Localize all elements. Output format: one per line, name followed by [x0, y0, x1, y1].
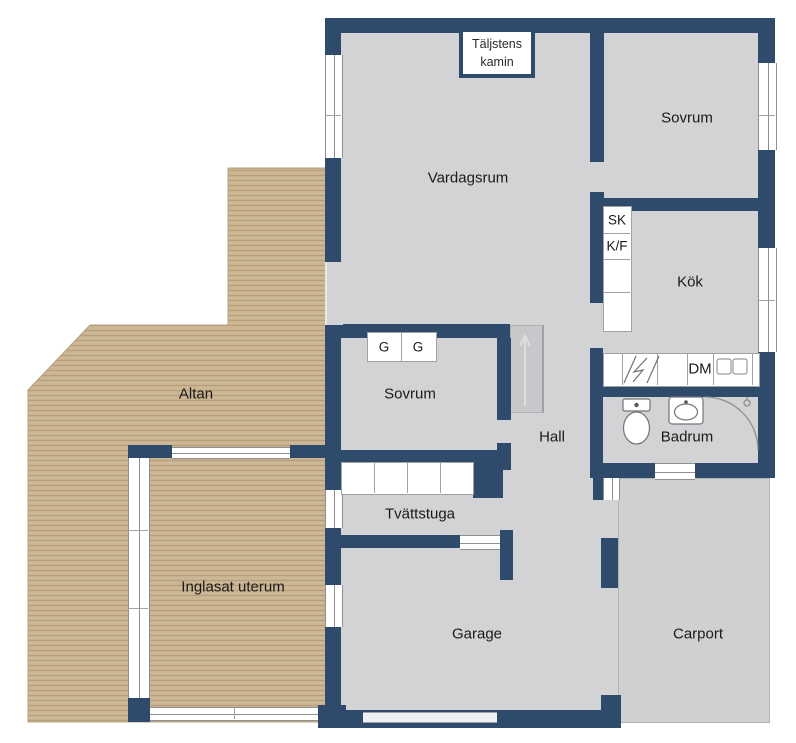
label-vardagsrum: Vardagsrum: [428, 170, 509, 187]
label-garage: Garage: [452, 626, 502, 643]
label-hall: Hall: [539, 429, 565, 446]
label-uterum: Inglasat uterum: [181, 579, 284, 596]
basin-icon: [669, 397, 703, 424]
label-carport: Carport: [673, 626, 723, 643]
label-kok: Kök: [677, 274, 703, 291]
label-sovrum-top: Sovrum: [661, 110, 713, 127]
label-tvattstuga: Tvättstuga: [385, 506, 455, 523]
stair-arrow-icon: [520, 336, 530, 406]
hob-icon: [717, 359, 747, 374]
label-altan: Altan: [179, 386, 213, 403]
kitchen-sink-icon: [624, 356, 659, 383]
label-badrum: Badrum: [661, 429, 714, 446]
floor-plan: Täljstens kamin SK K/F DM G G: [0, 0, 796, 743]
label-sovrum-mid: Sovrum: [384, 386, 436, 403]
toilet-icon: [623, 399, 650, 444]
